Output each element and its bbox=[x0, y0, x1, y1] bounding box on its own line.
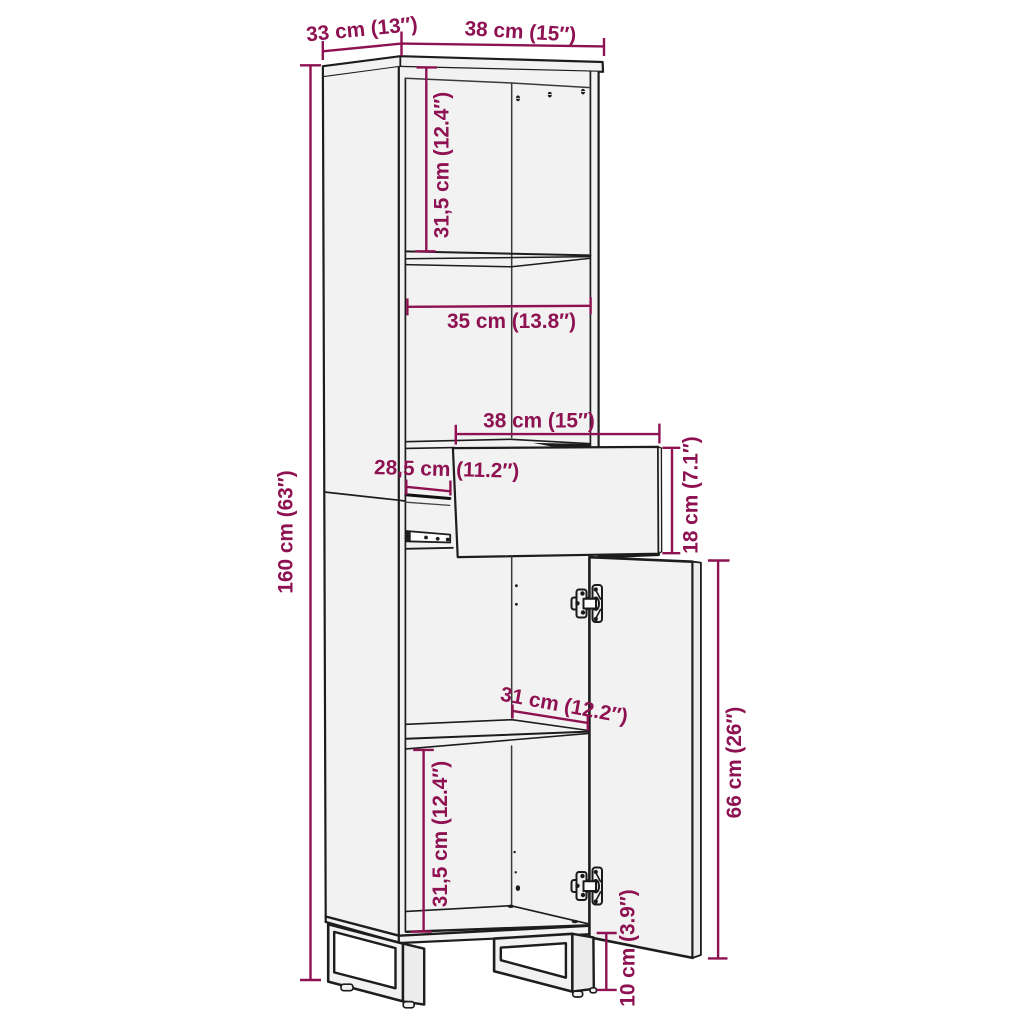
svg-text:35 cm (13.8″): 35 cm (13.8″) bbox=[447, 310, 576, 333]
svg-text:31,5 cm (12.4″): 31,5 cm (12.4″) bbox=[429, 761, 452, 907]
svg-text:66 cm (26″): 66 cm (26″) bbox=[723, 707, 746, 819]
svg-text:38 cm (15″): 38 cm (15″) bbox=[483, 409, 595, 432]
svg-text:31,5 cm (12.4″): 31,5 cm (12.4″) bbox=[431, 92, 454, 238]
svg-text:10 cm (3.9″): 10 cm (3.9″) bbox=[617, 889, 640, 1006]
svg-text:28,5 cm (11.2″): 28,5 cm (11.2″) bbox=[374, 456, 520, 483]
svg-text:160 cm (63″): 160 cm (63″) bbox=[275, 470, 298, 593]
svg-text:18 cm (7.1″): 18 cm (7.1″) bbox=[680, 436, 703, 553]
